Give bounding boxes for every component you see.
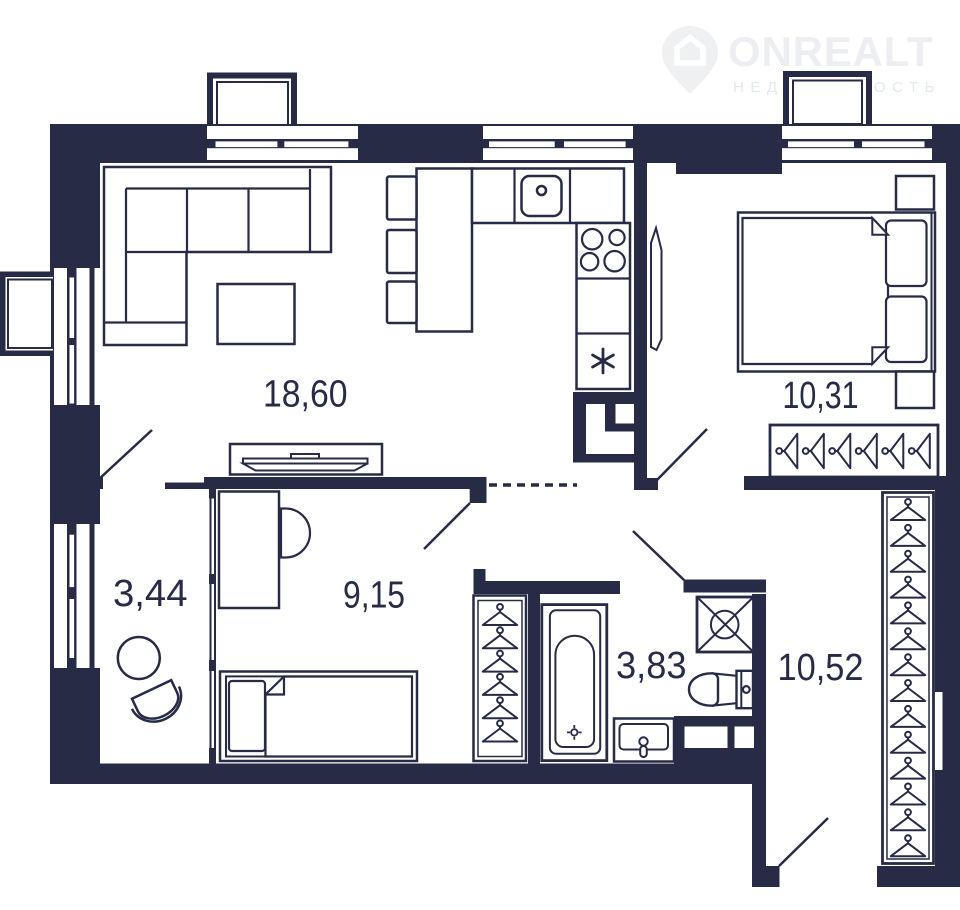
svg-text:3,44: 3,44	[113, 573, 188, 615]
svg-text:9,15: 9,15	[343, 575, 405, 617]
svg-text:10,31: 10,31	[783, 375, 859, 417]
svg-text:3,83: 3,83	[616, 645, 687, 687]
svg-text:10,52: 10,52	[778, 647, 864, 689]
svg-text:18,60: 18,60	[263, 374, 348, 416]
svg-text:ONREALT: ONREALT	[728, 28, 933, 75]
